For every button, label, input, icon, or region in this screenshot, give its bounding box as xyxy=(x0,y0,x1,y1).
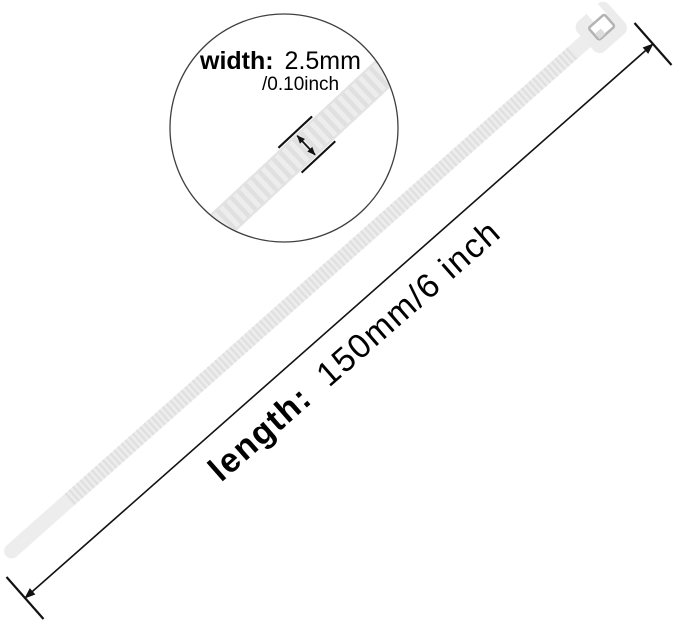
width-alt-value: /0.10inch xyxy=(262,74,339,95)
diagram-canvas: width: 2.5mm /0.10inch length: 150mm/ xyxy=(0,0,679,623)
length-label: length: xyxy=(201,379,319,489)
width-value: 2.5mm xyxy=(285,47,361,75)
product-diagram: width: 2.5mm /0.10inch length: 150mm/ xyxy=(0,0,679,623)
width-label-text: width: 2.5mm xyxy=(199,47,361,75)
length-value: 150mm/6 inch xyxy=(309,213,508,394)
width-label: width: xyxy=(199,47,274,75)
width-inset: width: 2.5mm /0.10inch xyxy=(161,14,440,282)
